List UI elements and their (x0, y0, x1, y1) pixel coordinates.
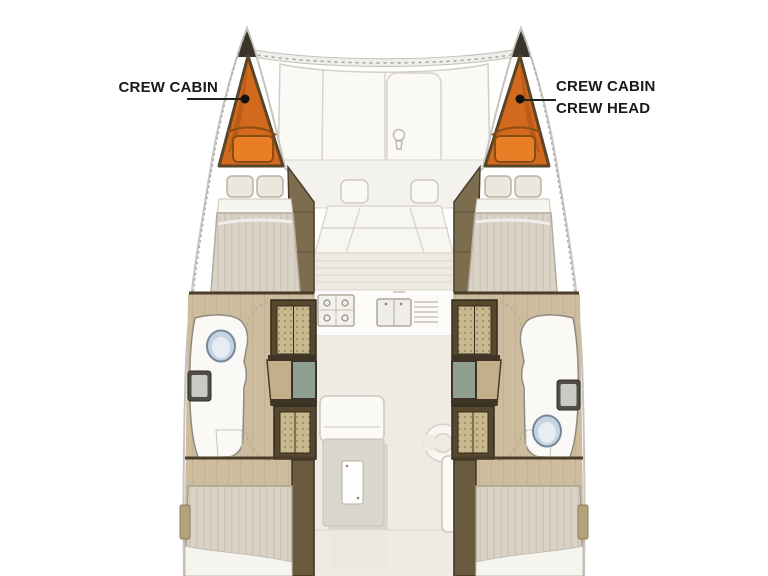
foredeck-cushions (278, 64, 490, 171)
table-card (342, 461, 363, 504)
trampoline-band (249, 49, 519, 67)
saloon-sofa (320, 396, 384, 442)
stove-icon (318, 295, 354, 326)
cockpit-seat (411, 180, 438, 203)
leader-dot-left (241, 95, 250, 104)
cockpit-seat (341, 180, 368, 203)
label-crew-cabin-right: CREW CABIN (556, 76, 656, 98)
galley-front (312, 253, 456, 290)
windshield (315, 206, 453, 253)
label-crew-cabin-left: CREW CABIN (119, 77, 219, 99)
label-group-right: CREW CABIN CREW HEAD (556, 76, 656, 120)
floor-plan: CREW CABIN CREW CABIN CREW HEAD (0, 0, 768, 576)
leader-dot-right (516, 95, 525, 104)
label-crew-head-right: CREW HEAD (556, 98, 656, 120)
